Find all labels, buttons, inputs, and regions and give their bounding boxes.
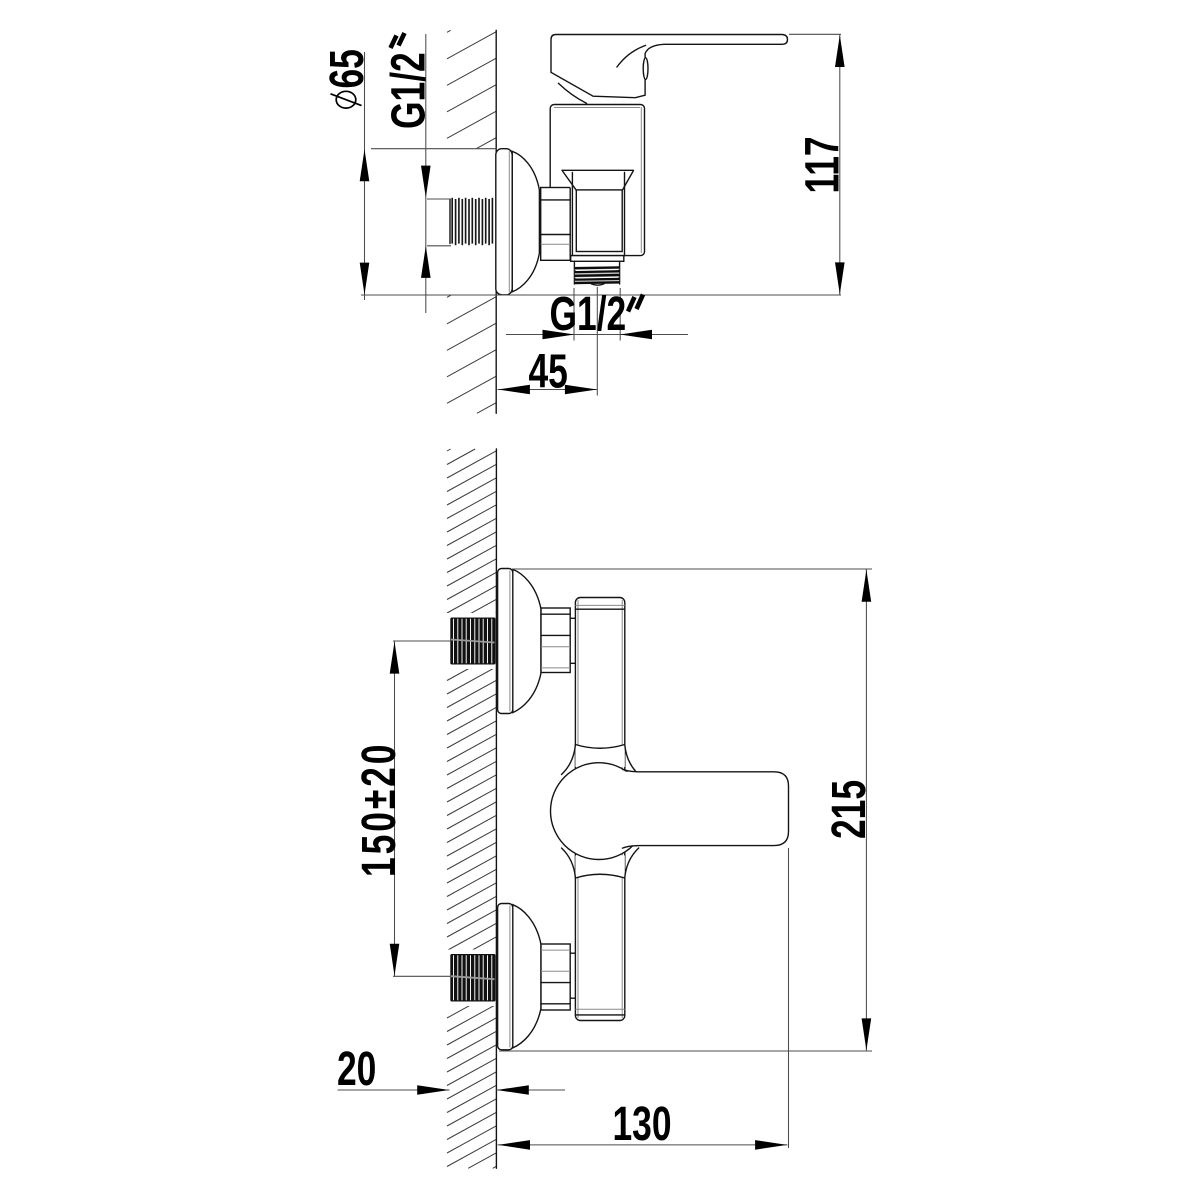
svg-text:G1/2: G1/2 [550,287,627,341]
svg-text:G1/2: G1/2 [381,52,435,129]
svg-text:215: 215 [822,780,876,839]
svg-text:150±20: 150±20 [351,742,405,877]
svg-text:65: 65 [320,49,374,88]
svg-text:117: 117 [795,136,849,193]
svg-text:20: 20 [337,1042,376,1096]
svg-text:130: 130 [613,1097,672,1151]
svg-text:45: 45 [529,344,568,398]
